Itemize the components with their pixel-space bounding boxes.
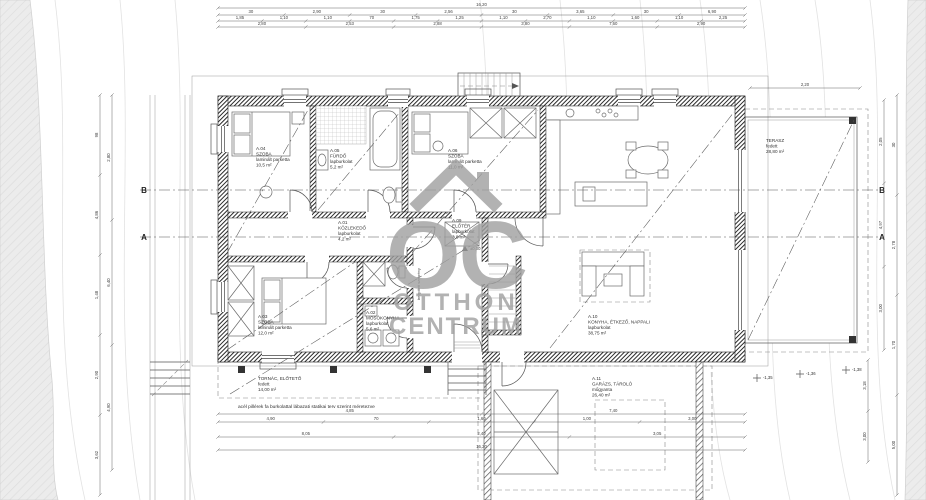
- svg-text:2,90: 2,90: [313, 9, 322, 14]
- room-area: 5,6 m²: [366, 327, 379, 332]
- room-area: 14,00 m²: [258, 387, 277, 392]
- svg-text:1,10: 1,10: [587, 15, 596, 20]
- dim-top-row4: 2,802,532,883,807,602,90: [216, 21, 746, 29]
- svg-text:4,90: 4,90: [106, 403, 111, 412]
- exterior-stair-left: [150, 360, 190, 396]
- level-g1: -1,35: [763, 375, 773, 380]
- svg-text:2,88: 2,88: [433, 21, 442, 26]
- room-finish: laminált parketta: [256, 157, 290, 162]
- svg-text:1,60: 1,60: [631, 15, 640, 20]
- svg-text:2,80: 2,80: [106, 153, 111, 162]
- slider-right-1: [734, 150, 746, 212]
- svg-text:2,05: 2,05: [878, 137, 883, 146]
- window-top-2: [386, 89, 410, 107]
- svg-text:2,20: 2,20: [801, 82, 810, 87]
- svg-text:30: 30: [380, 9, 385, 14]
- chimney-icon: [477, 172, 489, 194]
- svg-text:30: 30: [249, 9, 254, 14]
- svg-text:30: 30: [512, 9, 517, 14]
- room-id: A.05: [330, 148, 340, 153]
- svg-text:1,10: 1,10: [675, 15, 684, 20]
- level-g2: -1,36: [806, 371, 816, 376]
- room-id: A.03: [258, 314, 268, 319]
- svg-text:4,97: 4,97: [878, 220, 883, 229]
- entry-door-opening: [452, 351, 482, 363]
- room-finish: lapburkolat: [366, 321, 389, 326]
- svg-text:5,00: 5,00: [891, 440, 896, 449]
- room-id: A.11: [592, 376, 602, 381]
- room-name: SZOBA: [256, 152, 273, 157]
- terrain-band-left: [0, 0, 58, 500]
- svg-text:6,40: 6,40: [106, 278, 111, 287]
- svg-text:1,70: 1,70: [891, 340, 896, 349]
- svg-text:3,05: 3,05: [653, 431, 662, 436]
- watermark-line1: OTTHON: [393, 289, 518, 316]
- room-finish: laminált parketta: [258, 325, 292, 330]
- svg-text:1,00: 1,00: [583, 416, 592, 421]
- room-name: GARÁZS, TÁROLÓ: [592, 381, 633, 387]
- room-name: FÜRDŐ: [330, 153, 347, 159]
- svg-text:2,90: 2,90: [94, 370, 99, 379]
- slider-right-2: [734, 250, 746, 330]
- room-area: 38,75 m²: [588, 331, 607, 336]
- room-area: 4,2 m²: [338, 237, 351, 242]
- svg-text:1,10: 1,10: [280, 15, 289, 20]
- room-id: A.10: [588, 314, 598, 319]
- stair-direction-arrow: [512, 83, 519, 89]
- window-top-1: [282, 89, 308, 107]
- svg-text:1,60: 1,60: [477, 416, 486, 421]
- window-left-1: [211, 124, 229, 154]
- room-finish: lapburkolat: [588, 325, 611, 330]
- level-g3: -1,38: [852, 367, 862, 372]
- svg-text:4,90: 4,90: [267, 416, 276, 421]
- dim-terrace-top: 2,20: [748, 82, 861, 90]
- section-a-left: A: [141, 233, 147, 242]
- room-finish: fedett: [258, 382, 270, 387]
- svg-text:1,10: 1,10: [324, 15, 333, 20]
- svg-text:70: 70: [369, 15, 374, 20]
- room-id: A.04: [256, 146, 266, 151]
- room-name: SZOBA: [258, 320, 275, 325]
- room-finish: lapburkolat: [338, 231, 361, 236]
- svg-text:3,80: 3,80: [521, 21, 530, 26]
- svg-text:3,65: 3,65: [576, 9, 585, 14]
- room-finish: lapburkolat: [330, 159, 353, 164]
- svg-text:16,20: 16,20: [476, 2, 487, 7]
- window-left-2: [211, 280, 229, 314]
- svg-text:2,53: 2,53: [346, 21, 355, 26]
- svg-text:3,18: 3,18: [862, 381, 867, 390]
- svg-text:2,25: 2,25: [719, 15, 728, 20]
- watermark-line2: CENTRUM: [389, 313, 523, 340]
- room-name: KONYHA, ÉTKEZŐ, NAPPALI: [588, 319, 650, 325]
- room-id: A.01: [338, 220, 348, 225]
- room-area: 28,80 m²: [766, 149, 785, 154]
- room-finish: fedett: [766, 144, 778, 149]
- svg-text:98: 98: [94, 132, 99, 137]
- room-area: 5,2 m²: [330, 165, 343, 170]
- svg-text:30: 30: [891, 142, 896, 147]
- room-name: SZOBA: [448, 154, 465, 159]
- room-id: A.02: [366, 310, 376, 315]
- room-name: TERASZ: [766, 138, 784, 143]
- room-name: KÖZLEKEDŐ: [338, 225, 367, 231]
- svg-text:2,56: 2,56: [444, 9, 453, 14]
- room-area: 12,0 m²: [258, 331, 274, 336]
- dim-left-col2: 2,806,404,90: [106, 93, 114, 471]
- svg-text:3,00: 3,00: [862, 432, 867, 441]
- svg-text:3,00: 3,00: [688, 416, 697, 421]
- site-path: [150, 95, 190, 500]
- svg-text:2,80: 2,80: [258, 21, 267, 26]
- svg-text:2,78: 2,78: [891, 240, 896, 249]
- svg-text:2,70: 2,70: [543, 15, 552, 20]
- svg-text:4,86: 4,86: [94, 210, 99, 219]
- dim-left-col1: 984,861,482,903,62: [94, 93, 102, 496]
- section-b-left: B: [141, 186, 147, 195]
- svg-text:16,20: 16,20: [476, 444, 487, 449]
- svg-text:1,48: 1,48: [94, 290, 99, 299]
- svg-text:1,85: 1,85: [236, 15, 245, 20]
- dim-right-col1: 2,054,973,00: [878, 98, 886, 351]
- svg-text:8,05: 8,05: [302, 431, 311, 436]
- svg-text:2,40: 2,40: [477, 431, 486, 436]
- svg-text:2,90: 2,90: [697, 21, 706, 26]
- room-finish: műgyanta: [592, 387, 613, 392]
- floor-plan-page: B B A A 16,20 302,90302,56303,65306,90 1…: [0, 0, 926, 500]
- floor-plan-drawing: B B A A 16,20 302,90302,56303,65306,90 1…: [0, 0, 926, 500]
- svg-text:6,90: 6,90: [708, 9, 717, 14]
- svg-text:1,75: 1,75: [411, 15, 420, 20]
- room-area: 26,40 m²: [592, 393, 611, 398]
- svg-text:3,00: 3,00: [878, 304, 883, 313]
- window-top-3: [465, 89, 491, 107]
- dim-right-col3: 3,183,00: [862, 358, 870, 463]
- svg-text:1,25: 1,25: [455, 15, 464, 20]
- room-area: 10,5 m²: [256, 163, 272, 168]
- svg-text:1,10: 1,10: [499, 15, 508, 20]
- window-top-5: [652, 89, 678, 107]
- structural-note: acél pillérek fa burkolattal lábazati st…: [238, 404, 375, 410]
- dim-top-total: 16,20: [216, 2, 746, 10]
- dim-right-col2: 302,781,705,00: [891, 93, 899, 496]
- svg-text:3,62: 3,62: [94, 450, 99, 459]
- terrain-band-right: [905, 0, 926, 500]
- room-id: A.06: [448, 148, 458, 153]
- svg-text:7,60: 7,60: [609, 21, 618, 26]
- garage-door-opening: [500, 351, 524, 363]
- svg-text:7,40: 7,40: [609, 408, 618, 413]
- window-top-4: [616, 89, 642, 107]
- room-name: TORNÁC, ELŐTETŐ: [258, 375, 302, 381]
- svg-text:30: 30: [644, 9, 649, 14]
- svg-text:70: 70: [374, 416, 379, 421]
